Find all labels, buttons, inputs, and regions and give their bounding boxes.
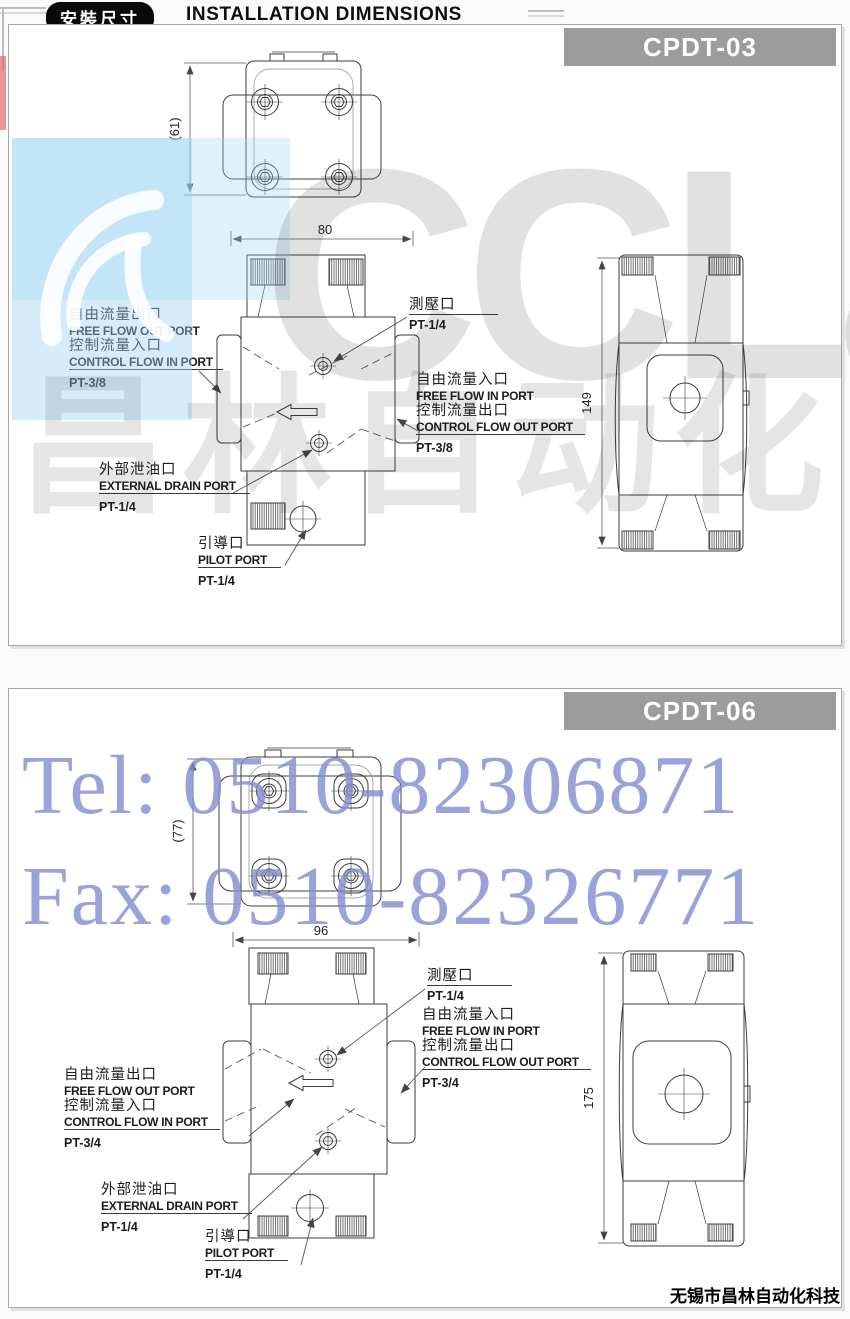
pilot-port-size: PT-1/4	[198, 574, 281, 588]
control-flow-in-port-label-en: CONTROL FLOW IN PORT	[64, 1116, 220, 1131]
control-flow-out-port-size: PT-3/8	[416, 441, 585, 455]
dimension-top-view-height: (61)	[167, 117, 182, 140]
external-drain-port-size: PT-1/4	[99, 500, 250, 514]
control-flow-in-port-label-cn: 控制流量入口	[64, 1098, 220, 1115]
dimension-body-width: 80	[318, 222, 332, 237]
control-flow-out-port-size: PT-3/4	[422, 1076, 591, 1090]
top-view	[223, 52, 381, 197]
gauge-port-label-cn: 測壓口	[427, 968, 512, 986]
external-drain-port-label-en: EXTERNAL DRAIN PORT	[99, 480, 250, 495]
label-external-drain-port: 外部泄油口 EXTERNAL DRAIN PORT PT-1/4	[101, 1182, 252, 1234]
side-view	[615, 255, 749, 551]
front-view	[223, 948, 415, 1238]
label-free-flow-in-and-control-out: 自由流量入口 FREE FLOW IN PORT 控制流量出口 CONTROL …	[416, 372, 585, 456]
flow-direction-arrow	[277, 405, 317, 420]
gauge-port-size: PT-1/4	[409, 318, 498, 332]
control-flow-in-port-size: PT-3/4	[64, 1136, 220, 1150]
control-flow-out-port-label-en: CONTROL FLOW OUT PORT	[422, 1056, 591, 1071]
leader-lines	[199, 317, 418, 565]
side-view	[619, 951, 750, 1246]
control-flow-out-port-label-en: CONTROL FLOW OUT PORT	[416, 421, 585, 436]
pilot-port-label-en: PILOT PORT	[198, 554, 281, 569]
pilot-port-label-cn: 引導口	[205, 1229, 288, 1246]
cpdt-03-panel: CPDT-03	[8, 24, 842, 646]
catalog-page: { "header": { "badge_cn": "安裝尺寸", "title…	[0, 0, 850, 1319]
pilot-port-label-cn: 引導口	[198, 536, 281, 553]
free-flow-in-port-label-en: FREE FLOW IN PORT	[416, 390, 585, 404]
header-rule-left-2	[0, 12, 46, 14]
dimension-lines-top-view	[187, 759, 241, 904]
cpdt-06-panel: CPDT-06	[8, 688, 842, 1308]
external-drain-port-label-en: EXTERNAL DRAIN PORT	[101, 1200, 252, 1215]
free-flow-in-port-label-en: FREE FLOW IN PORT	[422, 1025, 591, 1039]
label-external-drain-port: 外部泄油口 EXTERNAL DRAIN PORT PT-1/4	[99, 462, 250, 514]
free-flow-out-port-label-en: FREE FLOW OUT PORT	[64, 1085, 220, 1099]
label-gauge-port: 測壓口 PT-1/4	[427, 968, 512, 1003]
control-flow-in-port-size: PT-3/8	[69, 376, 223, 390]
free-flow-out-port-label-cn: 自由流量出口	[64, 1067, 220, 1084]
header-rule-right-1	[528, 10, 564, 12]
control-flow-in-port-label-cn: 控制流量入口	[69, 338, 223, 355]
gauge-port-label-cn: 測壓口	[409, 297, 498, 315]
label-pilot-port: 引導口 PILOT PORT PT-1/4	[205, 1229, 288, 1281]
control-flow-out-port-label-cn: 控制流量出口	[422, 1038, 591, 1055]
header-rule-right-2	[528, 15, 564, 17]
free-flow-in-port-label-cn: 自由流量入口	[422, 1007, 591, 1024]
free-flow-out-port-label-en: FREE FLOW OUT PORT	[69, 325, 223, 339]
top-view	[219, 748, 401, 906]
label-gauge-port: 測壓口 PT-1/4	[409, 297, 498, 332]
header-rule-left-1	[0, 7, 46, 9]
section-title: INSTALLATION DIMENSIONS	[186, 4, 462, 26]
label-free-flow-out-and-control-in: 自由流量出口 FREE FLOW OUT PORT 控制流量入口 CONTROL…	[69, 307, 223, 391]
footer-company-name: 无锡市昌林自动化科技	[560, 1282, 840, 1307]
label-pilot-port: 引導口 PILOT PORT PT-1/4	[198, 536, 281, 588]
hidden-passage-lines	[225, 1049, 385, 1135]
flow-direction-arrow	[289, 1076, 333, 1091]
external-drain-port-label-cn: 外部泄油口	[99, 462, 250, 479]
dimension-lines-top-view	[184, 63, 246, 195]
external-drain-port-label-cn: 外部泄油口	[101, 1182, 252, 1199]
pilot-port-size: PT-1/4	[205, 1267, 288, 1281]
page-edge-rule	[2, 7, 4, 71]
gauge-port-size: PT-1/4	[427, 989, 512, 1003]
dimension-body-width: 96	[314, 923, 328, 938]
dimension-top-view-height: (77)	[170, 819, 185, 842]
label-free-flow-out-and-control-in: 自由流量出口 FREE FLOW OUT PORT 控制流量入口 CONTROL…	[64, 1067, 220, 1151]
label-free-flow-in-and-control-out: 自由流量入口 FREE FLOW IN PORT 控制流量出口 CONTROL …	[422, 1007, 591, 1091]
free-flow-out-port-label-cn: 自由流量出口	[69, 307, 223, 324]
pilot-port-label-en: PILOT PORT	[205, 1247, 288, 1262]
control-flow-out-port-label-cn: 控制流量出口	[416, 403, 585, 420]
free-flow-in-port-label-cn: 自由流量入口	[416, 372, 585, 389]
control-flow-in-port-label-en: CONTROL FLOW IN PORT	[69, 356, 223, 371]
